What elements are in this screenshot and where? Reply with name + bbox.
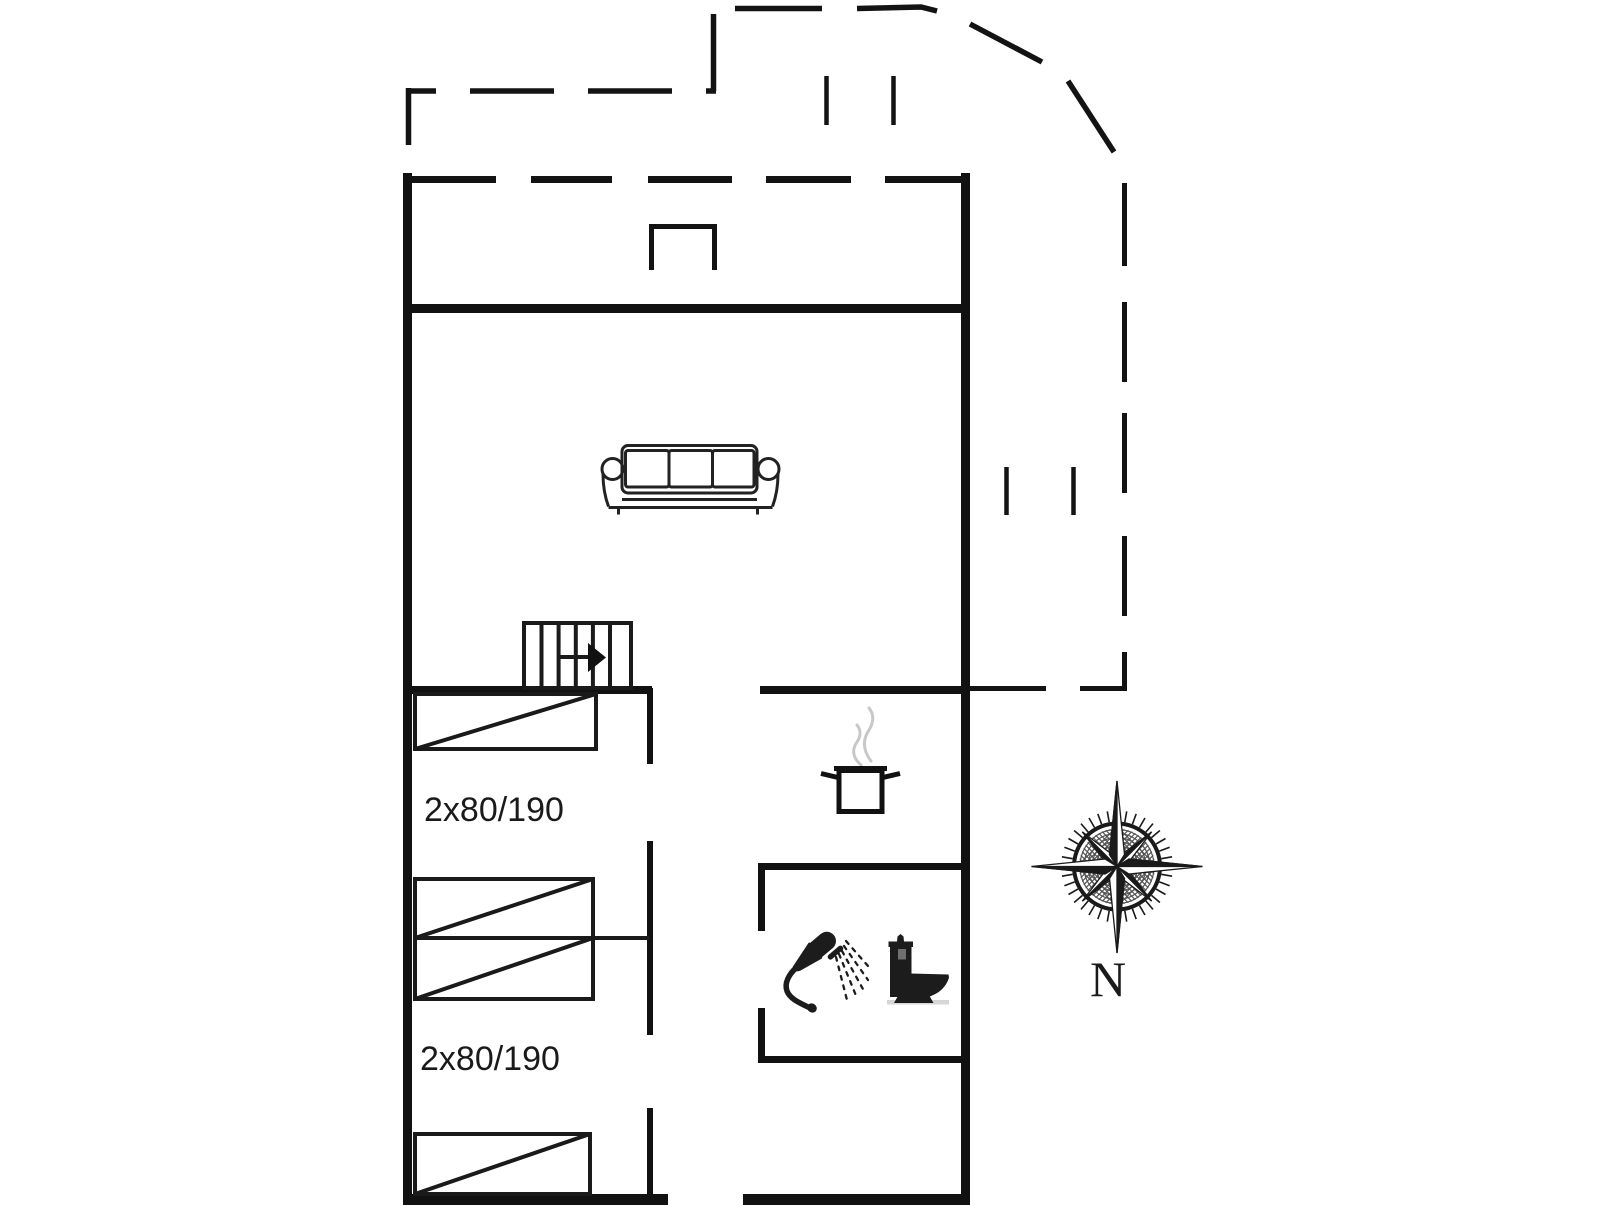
svg-text:N: N: [1090, 951, 1126, 1007]
svg-text:2x80/190: 2x80/190: [420, 1040, 560, 1078]
svg-text:2x80/190: 2x80/190: [424, 791, 564, 829]
